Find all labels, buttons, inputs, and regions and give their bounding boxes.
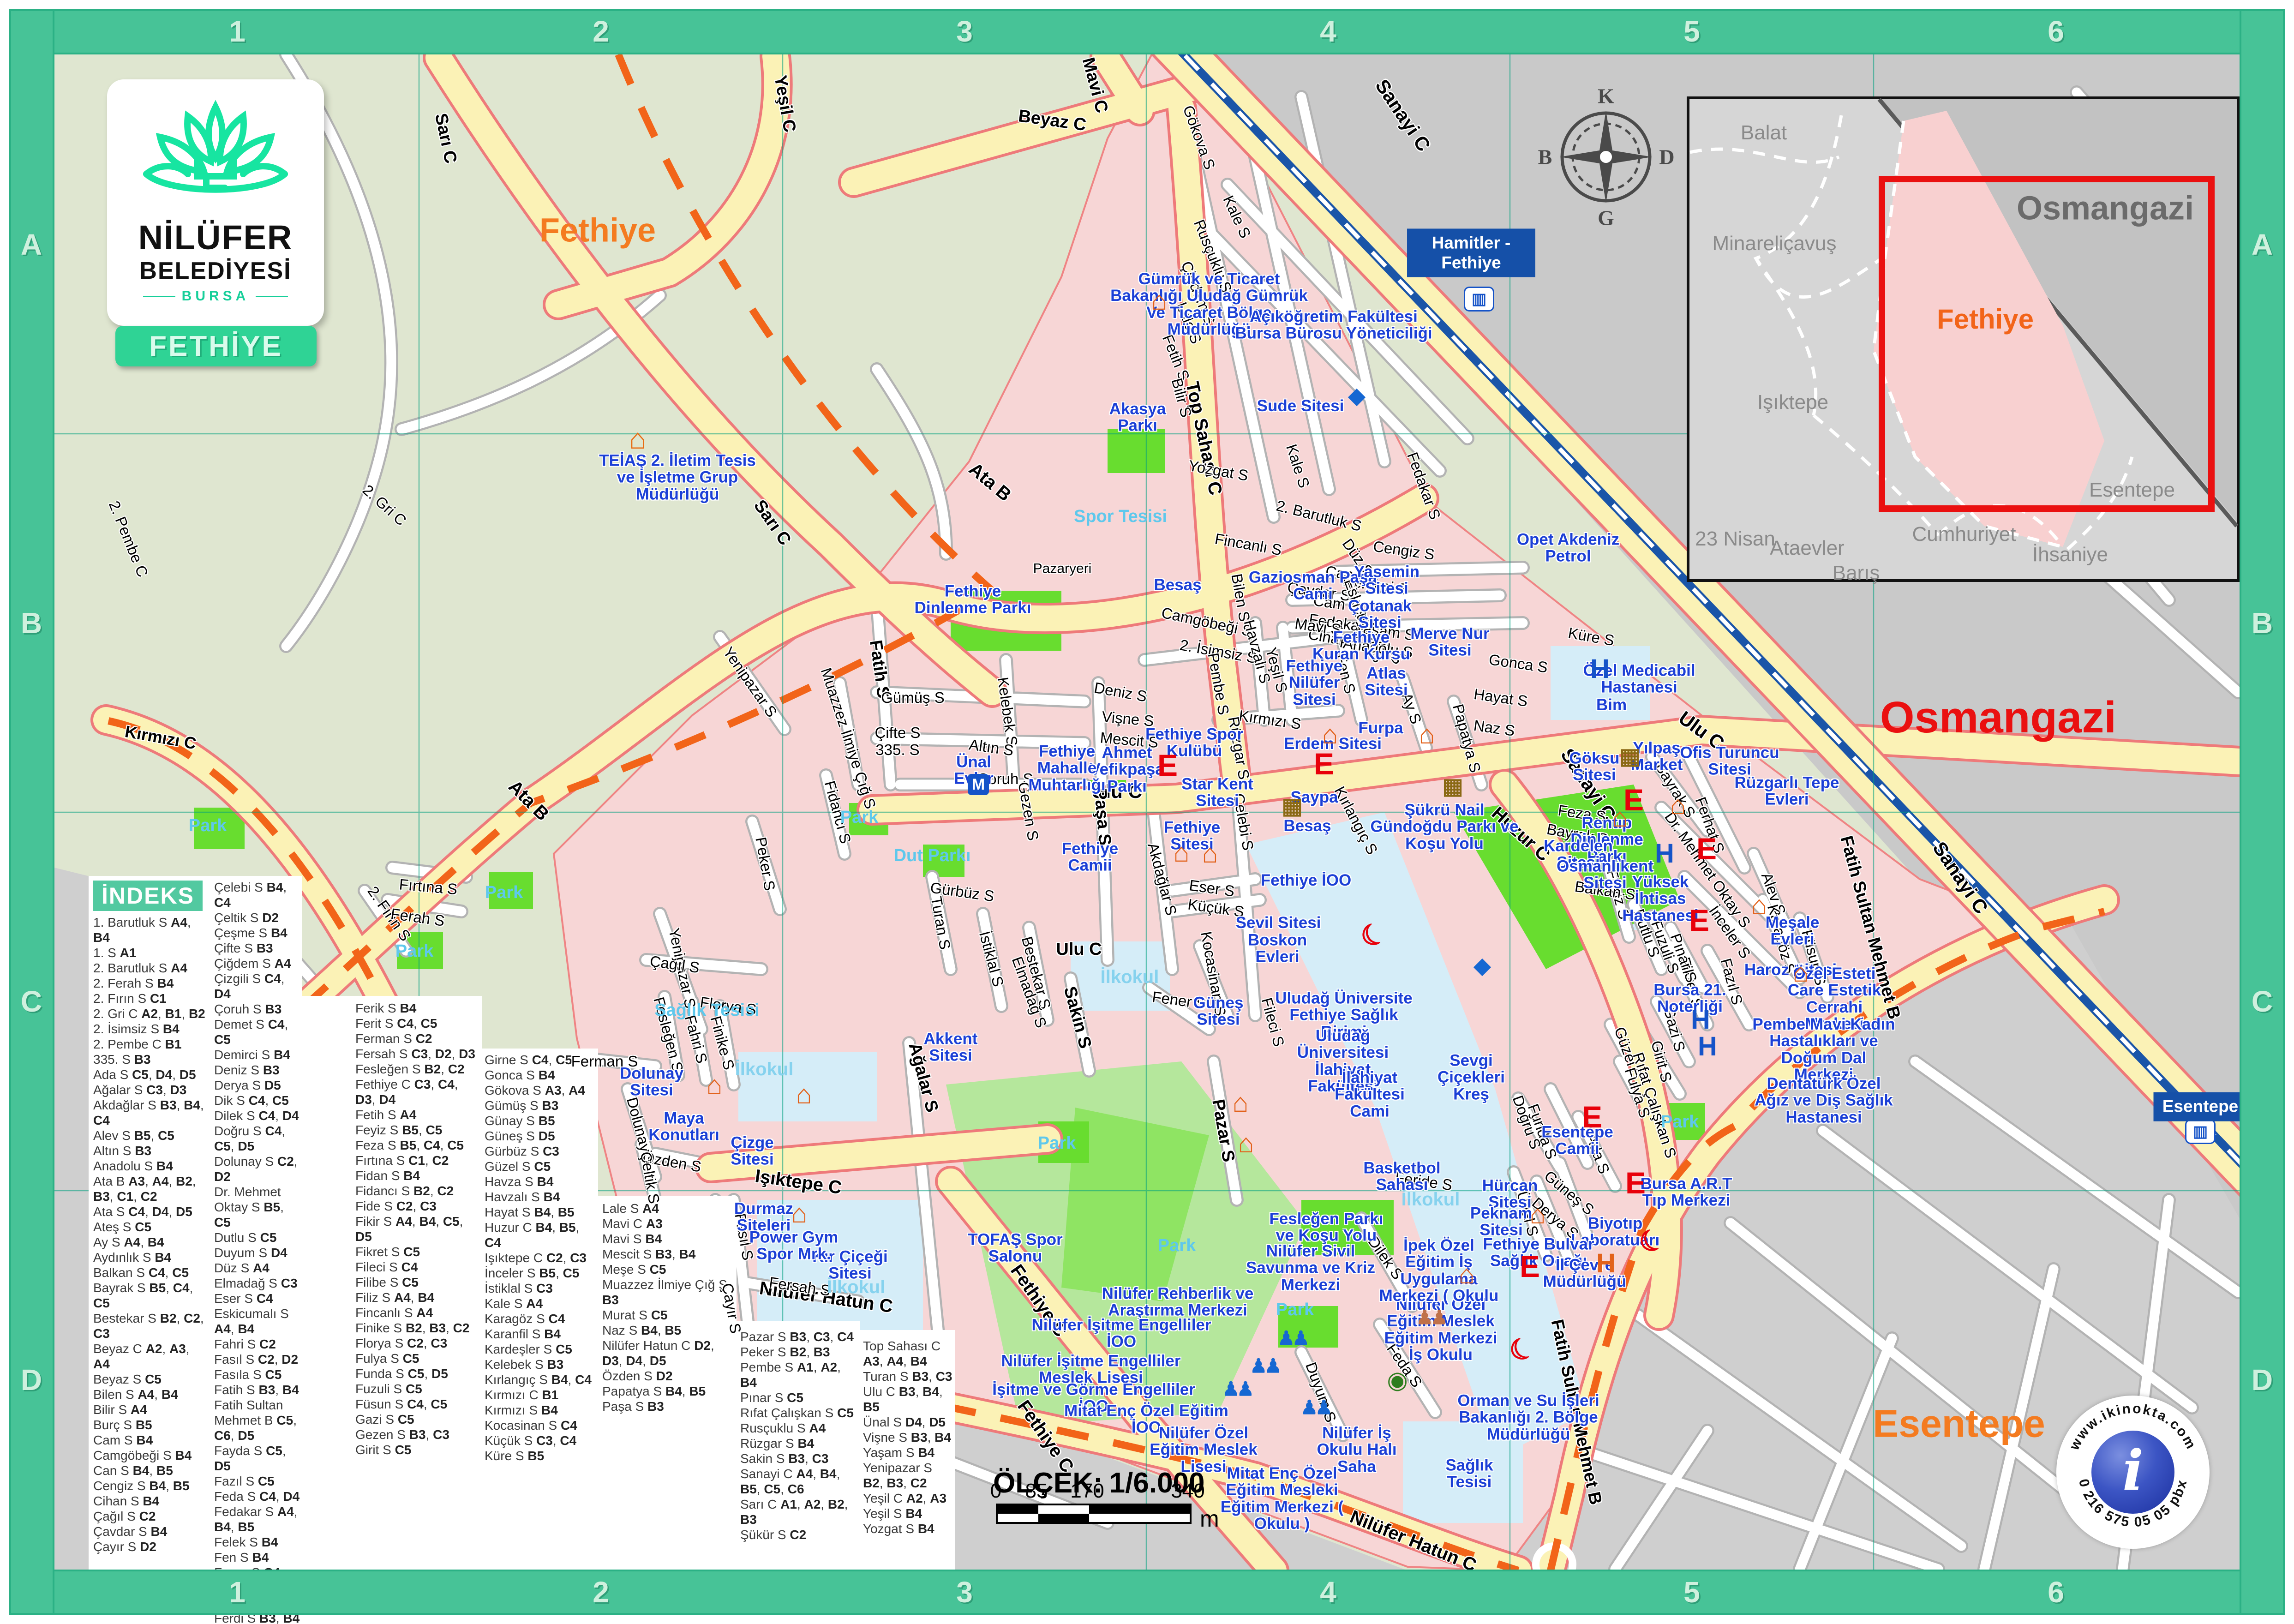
municipality-logo-card: NİLÜFER BELEDİYESİ BURSA: [107, 79, 324, 326]
compass-south-label: G: [1598, 206, 1614, 230]
publisher-badge: www.ikinokta.com • 0 216 575 05 05 pbx •…: [2056, 1396, 2210, 1549]
info-sphere-icon: i: [2091, 1431, 2174, 1514]
scale-tick: 340: [1171, 1480, 1204, 1503]
inset-label: Işıktepe: [1757, 392, 1828, 413]
inset-label: 23 Nisan: [1695, 528, 1775, 550]
inset-label: Balat: [1741, 122, 1787, 144]
grid-row-label-C: C: [2252, 984, 2273, 1019]
inset-label: Osmangazi: [2017, 192, 2194, 226]
grid-row-label-B: B: [21, 606, 42, 640]
logo-title: NİLÜFER: [107, 218, 324, 257]
grid-row-label-A: A: [2252, 228, 2273, 262]
scale-tick: 85: [1025, 1480, 1048, 1503]
district-name-badge: FETHİYE: [115, 326, 317, 366]
grid-col-label-5: 5: [1683, 1575, 1700, 1609]
grid-col-label-3: 3: [956, 1575, 973, 1609]
frame-bottom: [9, 1570, 2285, 1615]
inset-label: Fethiye: [1937, 305, 2034, 334]
inset-label: Esentepe: [2089, 479, 2175, 501]
grid-row-label-D: D: [2252, 1363, 2273, 1397]
scale-unit: m: [1200, 1505, 1219, 1532]
logo-subtitle: BELEDİYESİ: [107, 257, 324, 285]
grid-col-label-1: 1: [229, 1575, 246, 1609]
grid-row-label-B: B: [2252, 606, 2273, 640]
inset-label: Cumhuriyet: [1912, 524, 2016, 545]
frame-top: [9, 9, 2285, 54]
grid-col-label-2: 2: [593, 14, 609, 48]
inset-labels-layer: BalatMinareliçavuşOsmangaziIşıktepeFethi…: [0, 0, 2294, 1624]
grid-col-label-2: 2: [593, 1575, 609, 1609]
compass-north-label: K: [1598, 84, 1614, 108]
grid-row-label-C: C: [21, 984, 42, 1019]
inset-label: Ataevler: [1770, 538, 1844, 559]
inset-label: Minareliçavuş: [1713, 233, 1837, 254]
logo-city: BURSA: [107, 288, 324, 304]
grid-col-label-4: 4: [1320, 1575, 1336, 1609]
compass-east-label: D: [1659, 145, 1674, 169]
grid-col-label-5: 5: [1683, 14, 1700, 48]
nilufer-lotus-logo-icon: [132, 89, 299, 218]
grid-row-label-D: D: [21, 1363, 42, 1397]
inset-label: İhsaniye: [2032, 544, 2108, 565]
inset-label: Barış: [1833, 563, 1880, 584]
grid-col-label-6: 6: [2048, 14, 2064, 48]
grid-col-label-4: 4: [1320, 14, 1336, 48]
scale-bar: [996, 1504, 1192, 1524]
grid-row-label-A: A: [21, 228, 42, 262]
compass-west-label: B: [1538, 145, 1552, 169]
grid-col-label-6: 6: [2048, 1575, 2064, 1609]
grid-col-label-1: 1: [229, 14, 246, 48]
grid-col-label-3: 3: [956, 14, 973, 48]
scale-tick: 0: [990, 1480, 1001, 1503]
fethiye-city-map-sheet: İNDEKS 1. Barutluk S A4, B41. S A12. Bar…: [0, 0, 2294, 1624]
scale-tick: 170: [1070, 1480, 1104, 1503]
